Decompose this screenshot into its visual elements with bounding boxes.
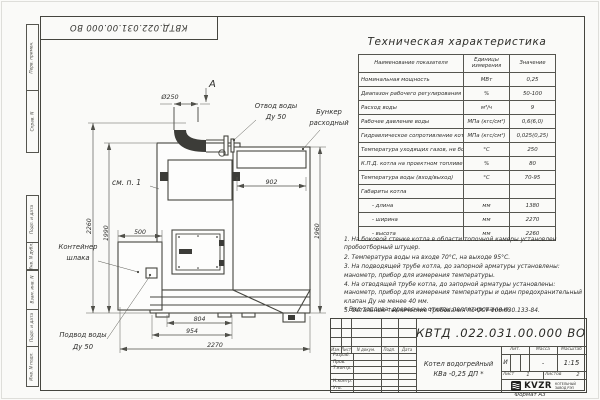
spec-row: К.П.Д. котла на проектном топливе%80 (359, 157, 556, 171)
spec-cell: % (464, 87, 510, 101)
tb-name-line2: КВа -0,25 ДП * (433, 370, 483, 378)
spec-row: Рабочее давление водыМПа (кгс/см²)0,6(6,… (359, 115, 556, 129)
inlet-label-line2: Ду 50 (52, 343, 114, 351)
dim-2270: 2270 (120, 342, 310, 349)
spec-cell: 9 (510, 101, 556, 115)
spec-table: Наименование показателя Единицы измерени… (358, 54, 556, 241)
tb-logo-text: KVZR (524, 381, 552, 391)
tb-change-col: Изм. (331, 346, 341, 353)
side-strip-top: Перв. примен.Справ. N (26, 25, 39, 153)
view-a-label: А (209, 79, 216, 90)
slag-container-label-line2: шлака (50, 254, 106, 262)
frame-side-cell: Инв. N дубл. (26, 242, 39, 270)
spec-cell: Рабочее давление воды (359, 115, 464, 129)
tb-sheets-value: 2 (573, 371, 583, 379)
tb-logo-subtext: КОТЕЛЬНЫЙ ЗАВОД РЭП (555, 382, 576, 390)
tb-sign-row-label: Утв. (333, 386, 353, 393)
side-strip-bottom: Подп. и датаИнв. N дубл.Взам. инв. NПодп… (26, 196, 39, 387)
frame-side-label: Подп. и дата (30, 313, 35, 342)
tb-product-name: Котел водогрейный КВа -0,25 ДП * (416, 346, 501, 392)
tb-scale-value: 1:15 (557, 354, 586, 371)
dim-902: 902 (237, 179, 306, 186)
spec-header-name: Наименование показателя (359, 55, 464, 73)
tb-change-col: Лист (341, 346, 351, 353)
frame-side-cell: Перв. примен. (26, 24, 39, 91)
outlet-label-line2: Ду 50 (250, 113, 302, 121)
note-item: 3. На подводящей трубе котла, до запорно… (344, 263, 585, 280)
doc-number-rotated: КВТД.022.031.00.000 ВО (40, 16, 217, 38)
dim-1960: 1960 (314, 223, 321, 239)
spec-cell: Расход воды (359, 101, 464, 115)
spec-row: - ширинамм2270 (359, 213, 556, 227)
spec-cell: К.П.Д. котла на проектном топливе (359, 157, 464, 171)
spec-cell: 250 (510, 143, 556, 157)
dim-954: 954 (152, 328, 232, 335)
spec-cell: МПа (кгс/см²) (464, 129, 510, 143)
title-block: КВТД .022.031.00.000 ВО Котел водогрейны… (330, 318, 587, 393)
spec-cell: Габариты котла (359, 185, 464, 199)
spec-cell: 1380 (510, 199, 556, 213)
spec-table-title: Техническая характеристика (352, 36, 562, 48)
tb-sheets-label: Листов (545, 371, 567, 379)
note-item: 2. Температура воды на входе 70°С, на вы… (344, 254, 585, 262)
frame-side-cell: Подп. и дата (26, 309, 39, 347)
spec-cell: Температура воды (вход/выход) (359, 171, 464, 185)
spec-cell: мм (464, 213, 510, 227)
tb-change-col: N докум. (351, 346, 381, 353)
frame-side-cell: Подп. и дата (26, 195, 39, 243)
tb-name-line1: Котел водогрейный (424, 360, 493, 368)
tb-logo: KVZR КОТЕЛЬНЫЙ ЗАВОД РЭП (501, 379, 586, 392)
frame-side-label: Взам. инв. N (30, 276, 35, 304)
frame-side-label: Перв. примен. (30, 42, 35, 74)
frame-side-label: Инв. N дубл. (30, 242, 35, 270)
spec-table-body: Номинальная мощностьМВт0,25Диапазон рабо… (359, 73, 556, 241)
tb-sheet-label: Лист (503, 371, 521, 379)
tb-sheet-value: 1 (523, 371, 533, 379)
frame-side-label: Справ. N (30, 112, 35, 132)
dim-2260: 2260 (86, 218, 93, 234)
notes-block: 1. На боковой стенке котла в области топ… (344, 236, 585, 316)
spec-cell: Температура уходящих газов, не более (359, 143, 464, 157)
dim-500: 500 (118, 229, 162, 236)
inlet-label-line1: Подвод воды (52, 331, 114, 339)
spec-cell (464, 185, 510, 199)
frame-side-cell: Взам. инв. N (26, 270, 39, 310)
spec-cell (510, 185, 556, 199)
tb-doc-number: КВТД .022.031.00.000 ВО (416, 319, 586, 346)
spec-cell: 2270 (510, 213, 556, 227)
outlet-label-line1: Отвод воды (250, 102, 302, 110)
note-item: 1. На боковой стенке котла в области топ… (344, 236, 585, 253)
spec-cell: МПа (кгс/см²) (464, 115, 510, 129)
tb-scale-label: Масштаб (557, 346, 586, 353)
frame-side-label: Подп. и дата (30, 205, 35, 234)
frame-side-cell: Справ. N (26, 90, 39, 153)
frame-side-label: Инв. N подл. (30, 352, 35, 380)
spec-cell: 0,025(0,25) (510, 129, 556, 143)
spec-cell: мм (464, 199, 510, 213)
bunker-label-line1: Бункер (306, 108, 352, 116)
fuel-note: * Вид топлива: древесные отходы пеллетир… (344, 307, 585, 313)
spec-row: Расход водым³/ч9 (359, 101, 556, 115)
spec-header-row: Наименование показателя Единицы измерени… (359, 55, 556, 73)
kvzr-logo-icon (511, 381, 521, 391)
spec-row: Габариты котла (359, 185, 556, 199)
spec-header-units: Единицы измерения (464, 55, 510, 73)
dim-804: 804 (167, 316, 232, 323)
spec-cell: м³/ч (464, 101, 510, 115)
tb-change-col: Дата (398, 346, 416, 353)
spec-header-value: Значение (510, 55, 556, 73)
spec-row: Номинальная мощностьМВт0,25 (359, 73, 556, 87)
spec-cell: 50-100 (510, 87, 556, 101)
spec-cell: % (464, 157, 510, 171)
tb-lit-label: Лит. (501, 346, 529, 353)
spec-cell: - ширина (359, 213, 464, 227)
tb-change-col: Подп. (381, 346, 398, 353)
dim-1990: 1990 (103, 225, 110, 241)
frame-side-cell: Инв. N подл. (26, 346, 39, 387)
bunker-label-line2: расходный (302, 119, 356, 127)
spec-row: - длинамм1380 (359, 199, 556, 213)
spec-row: Диапазон рабочего регулирования%50-100 (359, 87, 556, 101)
spec-cell: Гидравлическое сопротивление котла (359, 129, 464, 143)
spec-cell: Диапазон рабочего регулирования (359, 87, 464, 101)
spec-cell: 0,6(6,0) (510, 115, 556, 129)
chimney-diameter-label: Ø250 (152, 93, 188, 101)
spec-cell: 0,25 (510, 73, 556, 87)
top-left-doc-number-cell: КВТД.022.031.00.000 ВО (40, 16, 218, 40)
tb-lit-value: И (501, 354, 510, 371)
slag-container-label-line1: Контейнер (50, 243, 106, 251)
spec-cell: °С (464, 171, 510, 185)
spec-cell: °С (464, 143, 510, 157)
spec-cell: МВт (464, 73, 510, 87)
note-item: 4. На отводящей трубе котла, до запорной… (344, 281, 585, 306)
tb-mass-label: Масса (529, 346, 557, 353)
see-note-label: см. п. 1 (112, 178, 141, 187)
spec-cell: 70-95 (510, 171, 556, 185)
spec-cell: Номинальная мощность (359, 73, 464, 87)
tb-logo-sub2: ЗАВОД РЭП (555, 386, 576, 390)
scanned-boiler-drawing: { "frame": { "doc_number_rotated": "КВТД… (0, 0, 600, 400)
tb-mass-value: - (529, 354, 557, 371)
spec-cell: - длина (359, 199, 464, 213)
spec-cell: 80 (510, 157, 556, 171)
spec-row: Температура уходящих газов, не более°С25… (359, 143, 556, 157)
spec-row: Гидравлическое сопротивление котлаМПа (к… (359, 129, 556, 143)
spec-row: Температура воды (вход/выход)°С70-95 (359, 171, 556, 185)
